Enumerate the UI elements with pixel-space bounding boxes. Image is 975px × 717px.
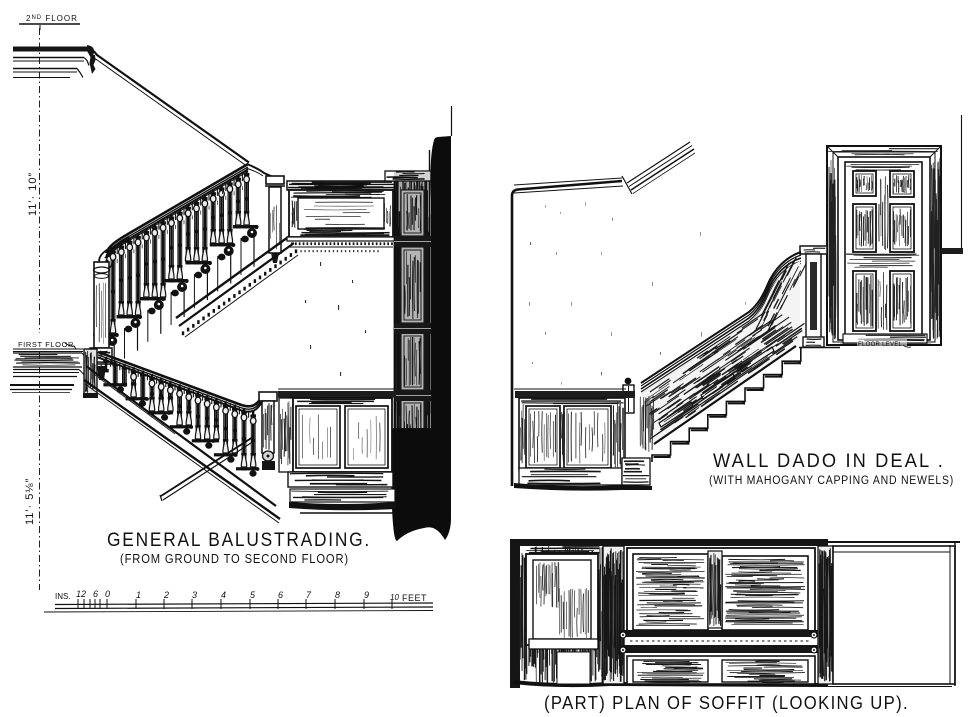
- svg-text:(PART) PLAN OF SOFFIT (LOOKING: (PART) PLAN OF SOFFIT (LOOKING UP).: [544, 692, 909, 713]
- svg-text:9: 9: [364, 590, 369, 600]
- svg-text:6: 6: [278, 590, 283, 600]
- svg-text:(WITH MAHOGANY CAPPING AND NEW: (WITH MAHOGANY CAPPING AND NEWELS): [709, 475, 954, 487]
- svg-text:11′· 10″: 11′· 10″: [27, 172, 39, 216]
- svg-text:FEET: FEET: [402, 593, 427, 603]
- svg-text:0: 0: [105, 589, 110, 599]
- svg-text:11′· 5⅛″: 11′· 5⅛″: [24, 478, 36, 525]
- svg-text:8: 8: [335, 590, 340, 600]
- svg-text:3: 3: [192, 590, 197, 600]
- svg-text:GENERAL BALUSTRADING.: GENERAL BALUSTRADING.: [107, 529, 371, 551]
- svg-text:FIRST FLOOR: FIRST FLOOR: [18, 340, 74, 349]
- svg-text:2: 2: [163, 590, 169, 600]
- svg-text:INS.: INS.: [55, 592, 71, 601]
- svg-text:6: 6: [93, 589, 98, 599]
- svg-text:4: 4: [221, 590, 226, 600]
- svg-text:1: 1: [136, 590, 141, 600]
- svg-text:10: 10: [390, 593, 399, 602]
- svg-text:(FROM GROUND TO SECOND FLOOR): (FROM GROUND TO SECOND FLOOR): [120, 551, 349, 566]
- svg-text:FLOOR LEVEL: FLOOR LEVEL: [858, 342, 903, 348]
- svg-text:WALL DADO IN DEAL .: WALL DADO IN DEAL .: [713, 451, 945, 472]
- svg-text:12: 12: [76, 589, 86, 599]
